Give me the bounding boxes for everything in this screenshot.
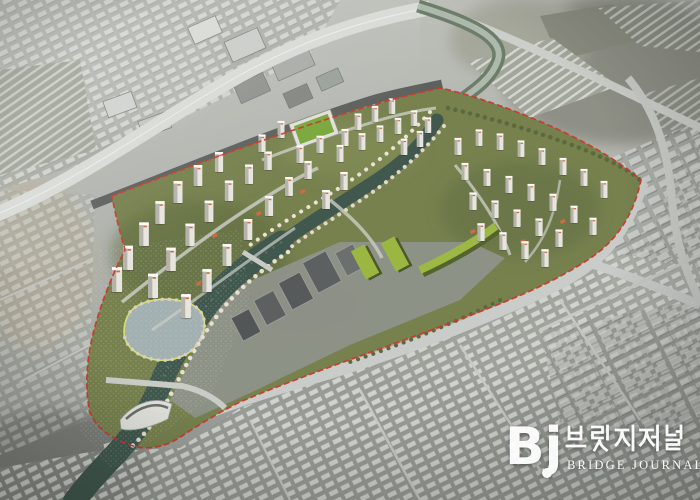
monogram-text: Bj: [505, 417, 562, 477]
english-logo-text: BRIDGE JOURNAL: [567, 458, 700, 472]
korean-logo-text: [567, 426, 681, 450]
person-head-icon: [542, 468, 552, 478]
aerial-rendering-image: Bj BRIDGE JOURNAL: [0, 0, 700, 500]
watermark: Bj BRIDGE JOURNAL: [505, 416, 700, 498]
bj-person-monogram-icon: Bj: [505, 417, 562, 478]
